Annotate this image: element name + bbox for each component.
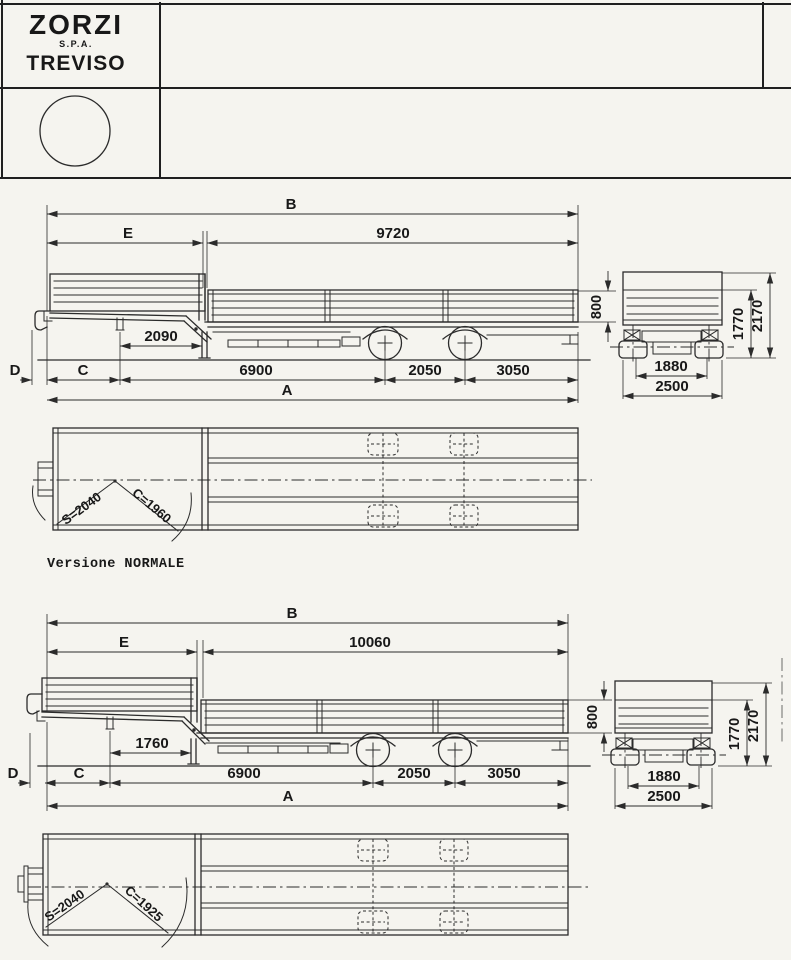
dim-rear-overhang-long: 3050 bbox=[487, 765, 520, 782]
dim-board-height-long: 800 bbox=[585, 705, 601, 729]
dim-axle-spacing-normale: 2050 bbox=[408, 362, 441, 379]
drawing-version-long: B E 10060 1760 D C 6900 2050 3050 A bbox=[8, 605, 782, 947]
blueprint-page: ZORZI S.P.A. TREVISO bbox=[0, 0, 791, 960]
dim-front-axle-normale: 6900 bbox=[239, 362, 272, 379]
dim-board-height-normale: 800 bbox=[589, 295, 605, 319]
dim-neck-normale: 2090 bbox=[144, 328, 177, 345]
dim-top-length-normale: 9720 bbox=[376, 225, 409, 242]
caption-versione-normale: Versione NORMALE bbox=[47, 557, 185, 572]
dim-A-label-normale: A bbox=[282, 382, 293, 399]
dim-B-label-long: B bbox=[287, 605, 298, 622]
rear-view-normale: 800 1770 2170 1880 2500 bbox=[578, 271, 776, 399]
brand-suffix: S.P.A. bbox=[59, 39, 93, 49]
dim-total-height-normale: 2170 bbox=[750, 300, 766, 332]
dim-rear-overhang-normale: 3050 bbox=[496, 362, 529, 379]
dim-side-height-normale: 1770 bbox=[731, 308, 747, 340]
brand-logo: ZORZI bbox=[29, 9, 123, 40]
swing-c-normale: C=1960 bbox=[129, 485, 174, 526]
dim-A-label-long: A bbox=[283, 788, 294, 805]
dim-D-label-long: D bbox=[8, 765, 19, 782]
rear-view-long: 800 1770 2170 1880 2500 bbox=[568, 658, 782, 809]
swing-s-normale: S=2040 bbox=[59, 489, 104, 528]
dim-total-height-long: 2170 bbox=[746, 710, 762, 742]
drawing-version-normale: B E 9720 2090 D C 6900 2050 3050 A bbox=[10, 196, 776, 572]
dim-front-axle-long: 6900 bbox=[227, 765, 260, 782]
dim-D-label-normale: D bbox=[10, 362, 21, 379]
plan-view-normale: S=2040 C=1960 bbox=[33, 428, 593, 541]
dim-side-height-long: 1770 bbox=[727, 718, 743, 750]
dim-track-long: 1880 bbox=[647, 768, 680, 785]
dim-width-long: 2500 bbox=[647, 788, 680, 805]
dim-C-label-long: C bbox=[74, 765, 85, 782]
side-view-normale bbox=[35, 274, 590, 360]
title-block: ZORZI S.P.A. TREVISO bbox=[0, 0, 791, 178]
brand-city: TREVISO bbox=[26, 52, 125, 75]
plan-view-long: S=2040 C=1925 bbox=[18, 834, 590, 947]
swing-c-long: C=1925 bbox=[122, 883, 166, 925]
stamp-circle bbox=[40, 96, 110, 166]
dimensions-side-long: B E 10060 1760 D C 6900 2050 3050 A bbox=[8, 605, 568, 811]
dim-width-normale: 2500 bbox=[655, 378, 688, 395]
dim-axle-spacing-long: 2050 bbox=[397, 765, 430, 782]
dim-C-label-normale: C bbox=[78, 362, 89, 379]
dim-E-label-normale: E bbox=[123, 225, 133, 242]
dim-E-label-long: E bbox=[119, 634, 129, 651]
dim-top-length-long: 10060 bbox=[349, 634, 391, 651]
dimensions-side-normale: B E 9720 2090 D C 6900 2050 3050 A bbox=[10, 196, 578, 403]
dim-neck-long: 1760 bbox=[135, 735, 168, 752]
dim-track-normale: 1880 bbox=[654, 358, 687, 375]
dim-B-label-normale: B bbox=[286, 196, 297, 213]
